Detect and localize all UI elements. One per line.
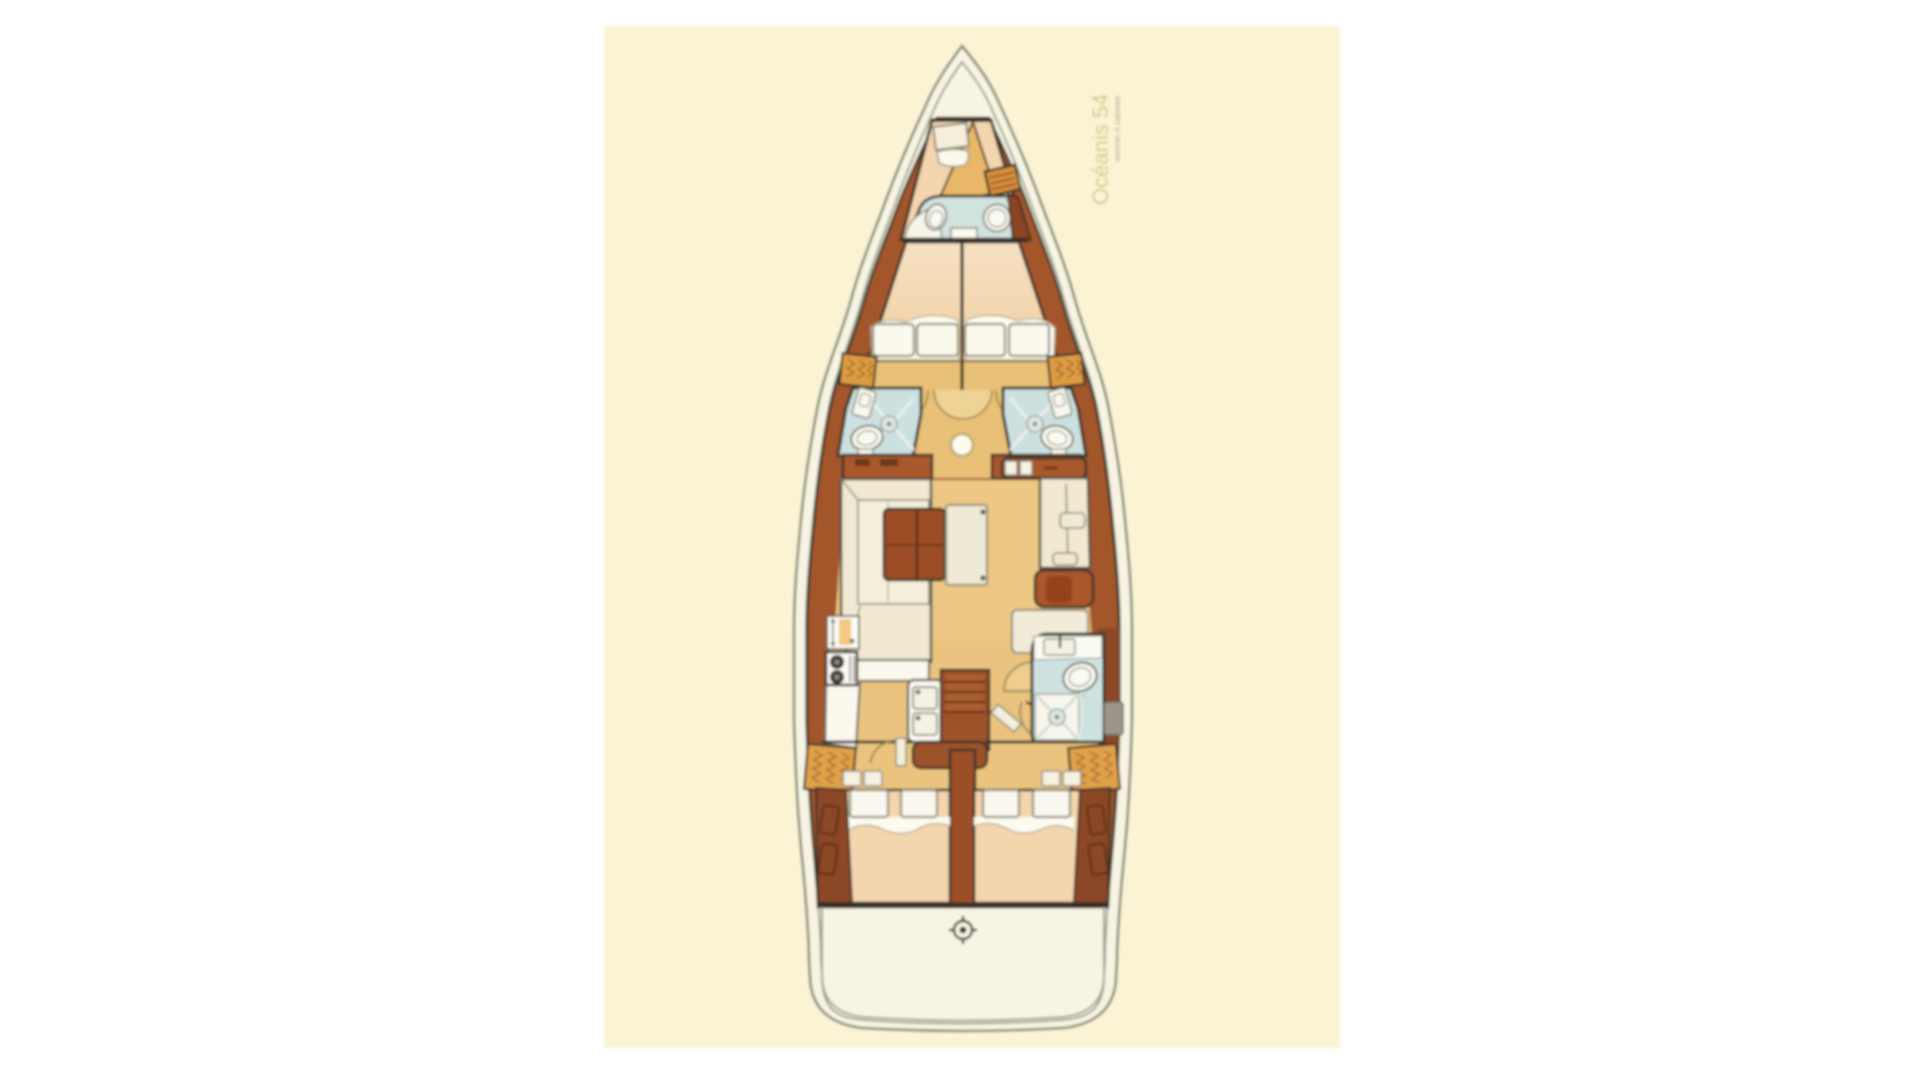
svg-text:Océanis 54: Océanis 54 [1088,94,1113,205]
svg-text:version 4 cabines: version 4 cabines [1112,96,1122,162]
